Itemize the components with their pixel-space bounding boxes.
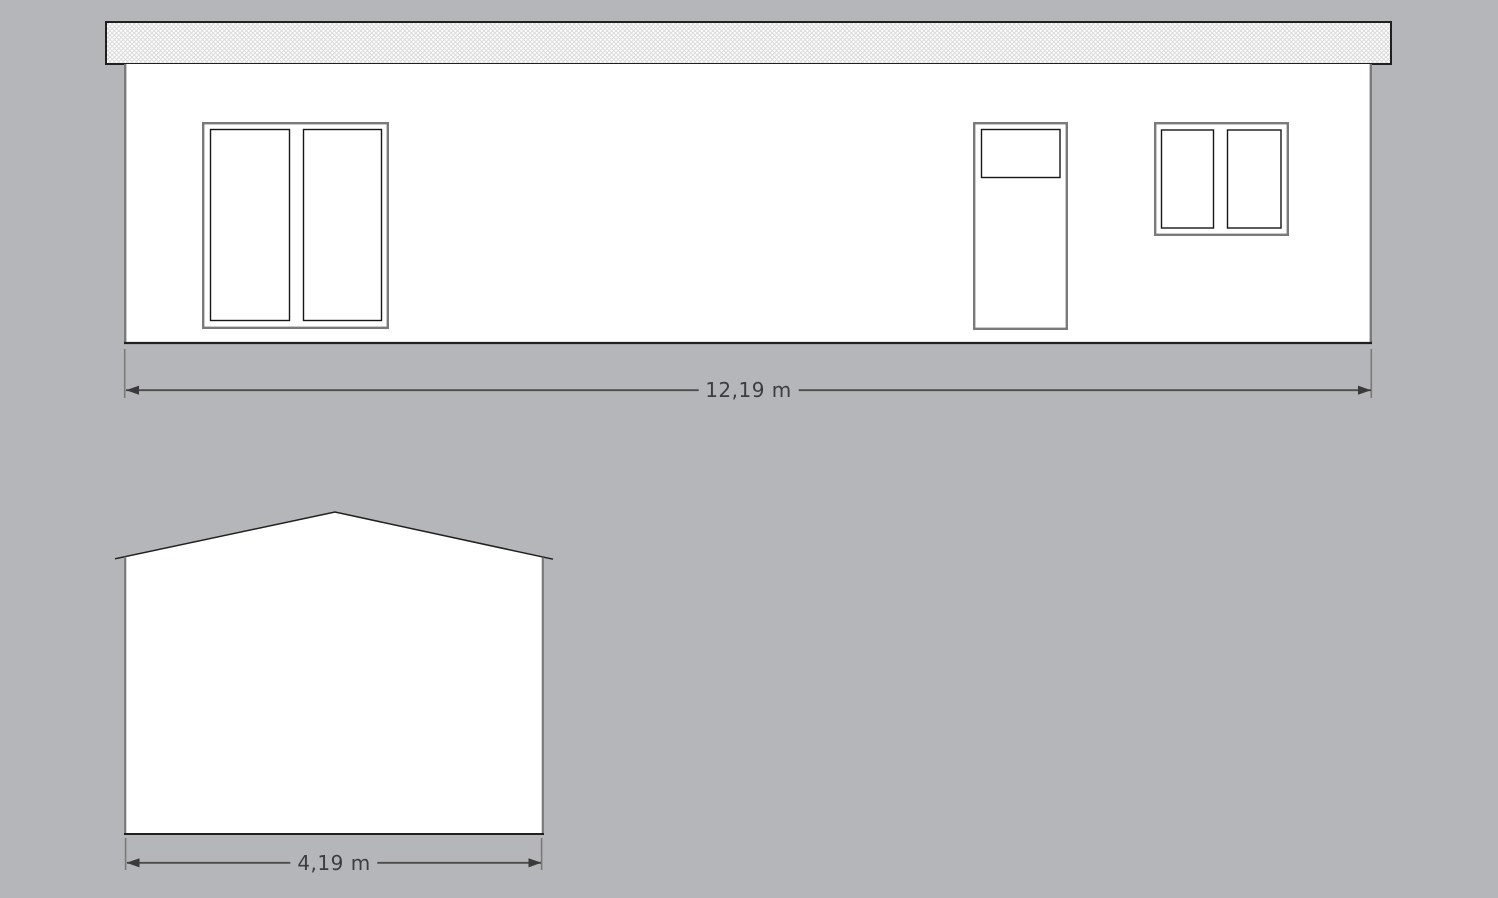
dimension-arrow-right-icon <box>529 858 542 867</box>
dimension-arrow-left-icon <box>126 386 139 395</box>
roof-fascia <box>106 22 1391 64</box>
window-left <box>203 123 388 328</box>
dimension-arrow-left-icon <box>127 858 140 867</box>
door-glass-panel <box>982 130 1061 178</box>
side-elevation-view <box>115 512 553 870</box>
window-right-pane-2 <box>1228 130 1282 228</box>
elevation-drawing <box>0 0 1498 898</box>
window-left-pane-1 <box>211 130 290 321</box>
window-right-pane-1 <box>1162 130 1214 228</box>
window-right <box>1155 123 1288 235</box>
front-width-dimension-label: 12,19 m <box>698 379 799 401</box>
gable-wall <box>125 512 543 834</box>
dimension-arrow-right-icon <box>1358 386 1371 395</box>
drawing-canvas: 12,19 m 4,19 m <box>0 0 1498 898</box>
window-left-pane-2 <box>304 130 382 321</box>
front-elevation-view <box>106 22 1391 398</box>
side-width-dimension-label: 4,19 m <box>290 852 377 874</box>
door <box>974 123 1067 329</box>
